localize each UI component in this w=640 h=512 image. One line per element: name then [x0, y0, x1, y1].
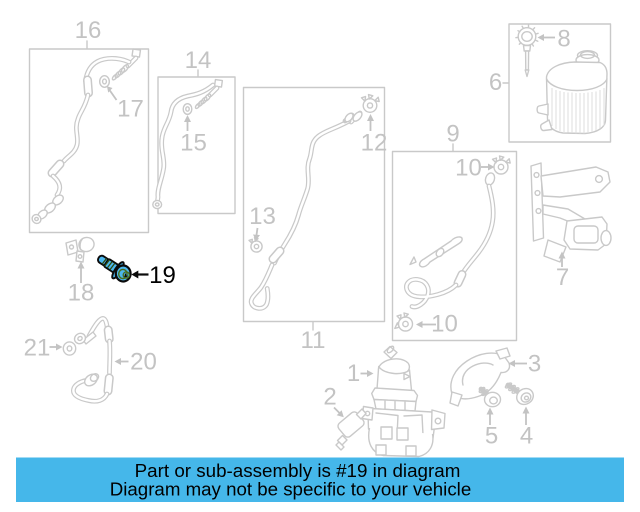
svg-text:16: 16	[75, 17, 102, 44]
svg-text:21: 21	[24, 335, 51, 362]
svg-text:10: 10	[455, 155, 482, 182]
svg-text:15: 15	[180, 130, 207, 157]
svg-text:6: 6	[489, 69, 502, 96]
svg-text:2: 2	[323, 384, 336, 411]
svg-text:Diagram may not be specific to: Diagram may not be specific to your vehi…	[110, 479, 471, 500]
svg-text:Part or sub-assembly is #19 in: Part or sub-assembly is #19 in diagram	[135, 460, 461, 481]
svg-text:1: 1	[347, 360, 360, 387]
svg-text:7: 7	[556, 264, 569, 291]
svg-text:13: 13	[249, 203, 276, 230]
svg-text:14: 14	[185, 47, 212, 74]
svg-text:17: 17	[117, 96, 144, 123]
svg-text:9: 9	[446, 121, 459, 148]
svg-text:8: 8	[557, 26, 570, 53]
svg-text:11: 11	[301, 327, 326, 354]
svg-text:4: 4	[520, 423, 533, 450]
svg-text:19: 19	[149, 262, 176, 289]
svg-text:18: 18	[68, 280, 95, 307]
svg-text:5: 5	[485, 423, 498, 450]
svg-text:20: 20	[130, 349, 157, 376]
svg-text:3: 3	[528, 351, 541, 378]
svg-text:12: 12	[361, 130, 388, 157]
